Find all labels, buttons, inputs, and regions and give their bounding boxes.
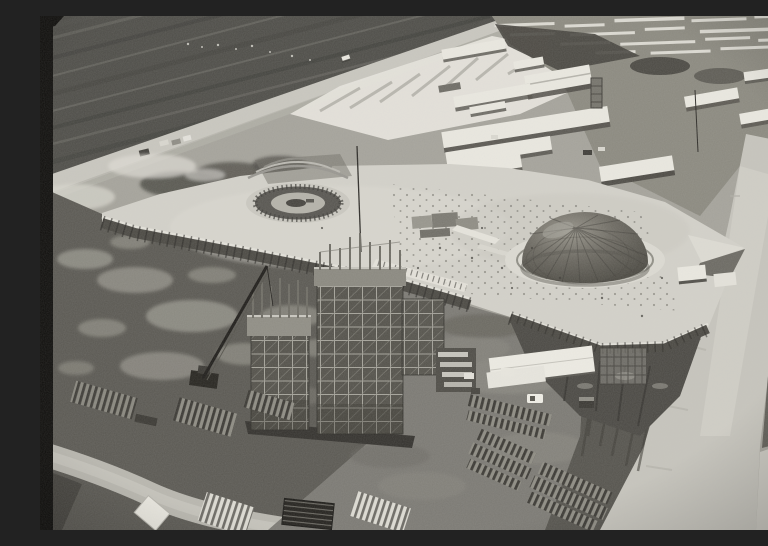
aerial-photograph: Aerial view of a large modernist constru… — [40, 16, 768, 530]
vignette — [40, 16, 768, 530]
